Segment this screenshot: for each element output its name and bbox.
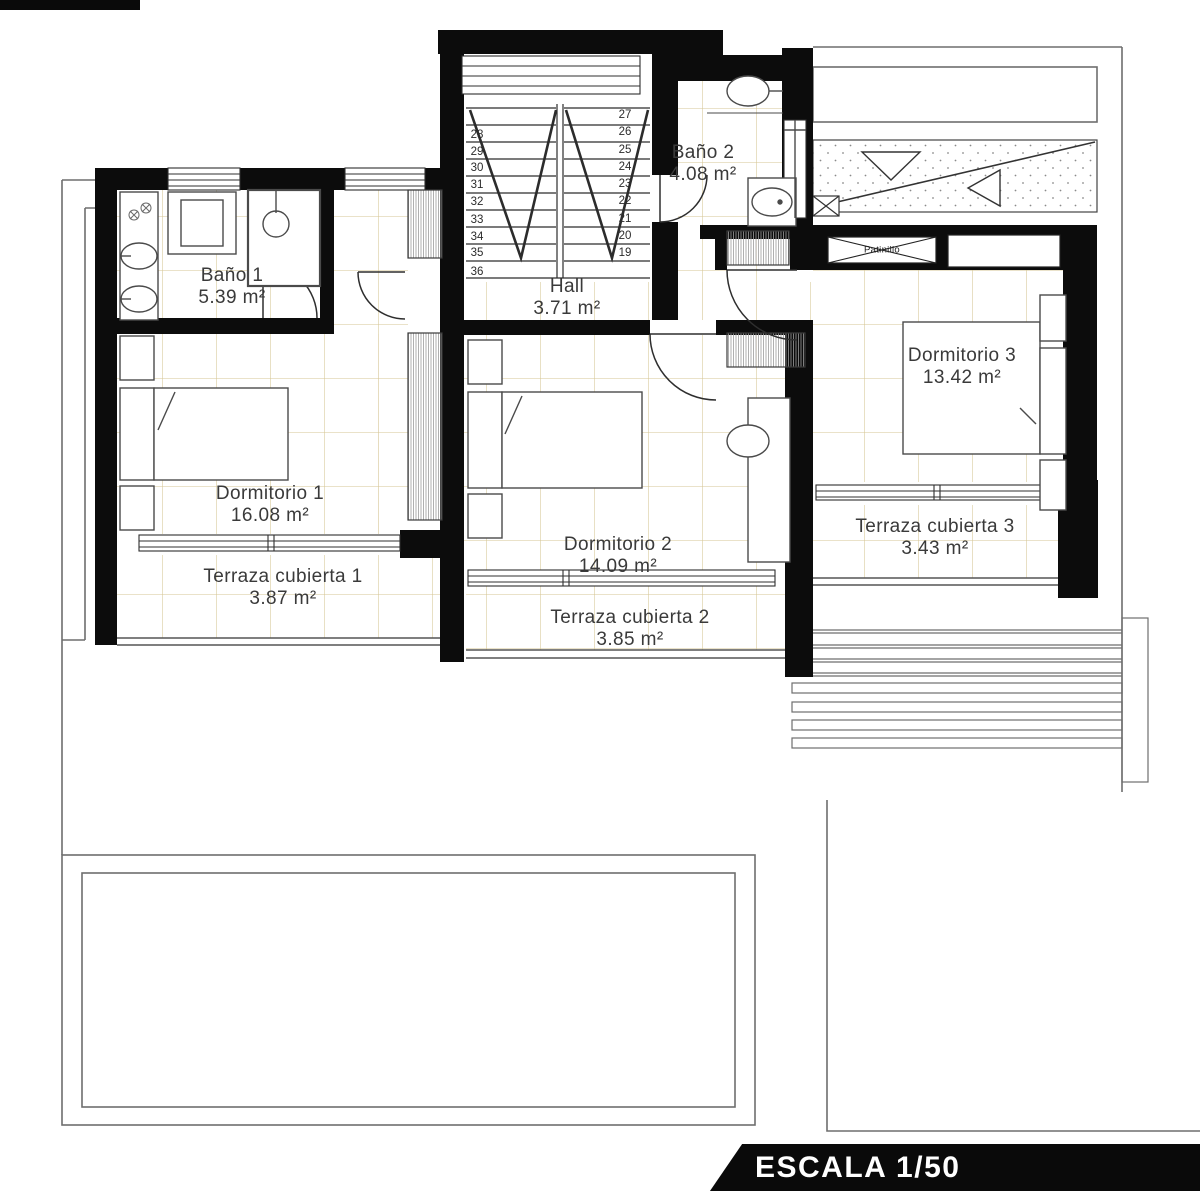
stair-number: 25 [619,144,632,156]
floor-plan: Baño 1 5.39 m² Baño 2 4.08 m² Hall 3.71 … [0,0,1200,1200]
room-name: Terraza cubierta 2 [550,607,709,628]
stair-number: 33 [471,214,484,226]
sink-2 [752,188,792,216]
room-name: Dormitorio 1 [216,483,324,504]
stair-number: 22 [619,195,632,207]
patinillo-label: Patinillo [864,245,900,256]
bath1-window-1 [168,168,240,190]
stair-number: 35 [471,247,484,259]
room-area: 14.09 m² [564,556,672,578]
room-label-bano1: Baño 1 5.39 m² [198,265,265,309]
stair-number: 31 [471,179,484,191]
roof-shaft-box [813,196,839,216]
bedroom3-closet [948,235,1060,267]
chair-2 [727,425,769,457]
washbasin [181,200,223,246]
logo-bar [0,0,140,10]
hall-wardrobe [727,231,789,265]
bath1-window-2 [345,168,425,190]
room-label-hall: Hall 3.71 m² [533,276,600,320]
room-label-dormitorio3: Dormitorio 3 13.42 m² [908,345,1016,389]
room-area: 13.42 m² [908,367,1016,389]
room-name: Terraza cubierta 3 [855,516,1014,537]
floor-plan-drawing [0,0,1200,1200]
stair-number: 30 [471,162,484,174]
stair-number: 36 [471,266,484,278]
bedroom3-terrace-window [816,485,1056,500]
external-stair-side [1122,618,1148,782]
stair-number: 19 [619,247,632,259]
stair-number: 20 [619,230,632,242]
room-label-terraza3: Terraza cubierta 3 3.43 m² [855,516,1014,560]
room-name: Terraza cubierta 1 [203,566,362,587]
room-label-dormitorio2: Dormitorio 2 14.09 m² [564,534,672,578]
lower-terrace-boundary [827,800,1200,1131]
room-name: Dormitorio 3 [908,345,1016,366]
room-name: Baño 1 [201,265,264,286]
room-name: Baño 2 [672,142,735,163]
stair-number: 24 [619,161,632,173]
room-label-terraza2: Terraza cubierta 2 3.85 m² [550,607,709,651]
stair-number: 26 [619,126,632,138]
room-area: 3.71 m² [533,298,600,320]
bedroom1-terrace-window [139,535,400,551]
shower-drain [263,211,289,237]
stair-number: 23 [619,178,632,190]
roof-slope-strip [813,140,1097,216]
room-area: 3.85 m² [550,629,709,651]
room-area: 3.87 m² [203,588,362,610]
desk-2 [748,398,790,562]
scale-label: ESCALA 1/50 [755,1151,960,1185]
roof-slab-edge [813,67,1097,122]
room-label-dormitorio1: Dormitorio 1 16.08 m² [216,483,324,527]
room-label-bano2: Baño 2 4.08 m² [669,142,736,186]
room-name: Dormitorio 2 [564,534,672,555]
stair-number: 34 [471,231,484,243]
room-area: 4.08 m² [669,164,736,186]
pool-outline [62,855,755,1125]
stair-number: 32 [471,196,484,208]
toilet-2 [727,76,769,106]
scale-banner: ESCALA 1/50 [705,1144,1200,1191]
stair-number: 27 [619,109,632,121]
room-name: Hall [550,276,584,297]
room-area: 3.43 m² [855,538,1014,560]
stair-number: 28 [471,129,484,141]
room-area: 5.39 m² [198,287,265,309]
stair-number: 21 [619,213,632,225]
external-stair-slats [792,618,1148,782]
room-area: 16.08 m² [216,505,324,527]
room-label-terraza1: Terraza cubierta 1 3.87 m² [203,566,362,610]
bedroom2-wardrobe [727,333,805,367]
stair-break-line-right [566,110,648,258]
stair-number: 29 [471,146,484,158]
stairwell-window [462,56,640,94]
